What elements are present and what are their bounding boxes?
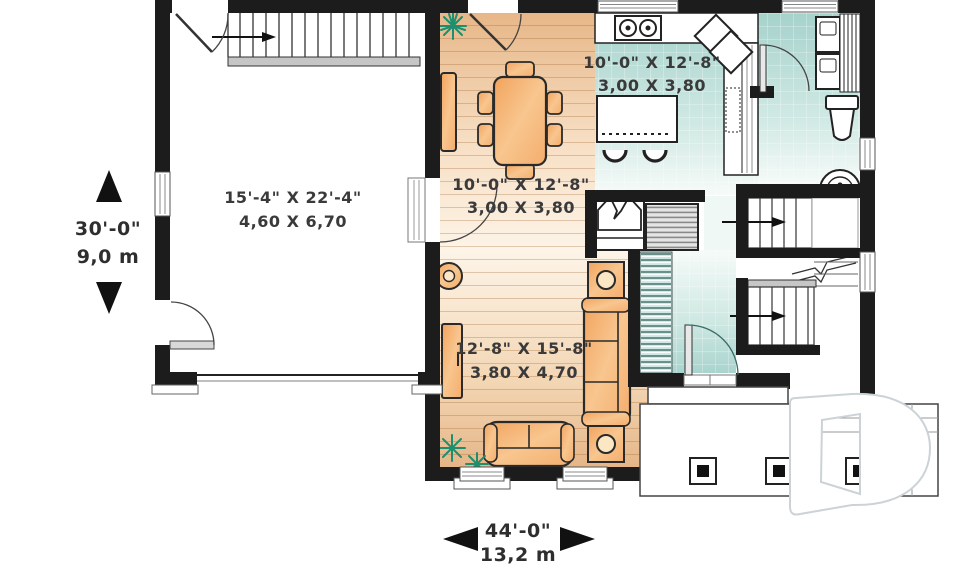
arrow-right-icon <box>560 527 595 551</box>
floor-plan-page: 15'-4" X 22'-4" 4,60 X 6,70 10'-0" X 12'… <box>0 0 960 569</box>
entry-closet-shelves <box>640 252 672 373</box>
linen-shelves <box>840 14 860 92</box>
fireplace <box>596 196 698 250</box>
stool <box>644 150 666 161</box>
living-window-west <box>454 467 510 489</box>
lamp <box>597 271 615 289</box>
end-table-south <box>588 426 624 462</box>
hearth <box>646 204 698 250</box>
stair-landing <box>812 198 858 248</box>
garage-size-metric: 4,60 X 6,70 <box>239 212 347 231</box>
dining-table <box>494 77 546 165</box>
loveseat <box>484 422 574 466</box>
width-metric: 13,2 m <box>480 544 556 566</box>
floor-plan-drawing: 15'-4" X 22'-4" 4,60 X 6,70 10'-0" X 12'… <box>0 0 960 569</box>
plant-icon <box>440 13 466 39</box>
right-wall-window-lower <box>860 252 875 292</box>
arrow-up-icon <box>96 170 122 202</box>
porch-column <box>690 458 716 484</box>
porch-column <box>766 458 792 484</box>
kitchen-sink <box>615 16 661 40</box>
end-table-north <box>588 262 624 298</box>
buffet <box>441 73 456 151</box>
arrow-down-icon <box>96 282 122 314</box>
width-imperial: 44'-0" <box>485 520 551 542</box>
kitchen-size-imperial: 10'-0" X 12'-8" <box>583 53 721 72</box>
depth-metric: 9,0 m <box>77 246 140 268</box>
right-wall-window-upper <box>860 138 875 170</box>
garage-size-imperial: 15'-4" X 22'-4" <box>224 188 362 207</box>
washer-dryer <box>816 17 840 89</box>
lamp <box>597 435 615 453</box>
living-size-metric: 3,80 X 4,70 <box>470 363 578 382</box>
garage-left-window <box>155 172 170 216</box>
laundry-window <box>782 1 838 12</box>
sofa <box>582 298 630 426</box>
depth-dimension-marker: 30'-0" 9,0 m <box>75 170 141 314</box>
dining-size-imperial: 10'-0" X 12'-8" <box>452 175 590 194</box>
living-window-east <box>557 467 613 489</box>
kitchen-size-metric: 3,00 X 3,80 <box>598 76 706 95</box>
kitchen-window <box>598 1 678 12</box>
living-size-imperial: 12'-8" X 15'-8" <box>455 339 593 358</box>
stair-break-line <box>792 263 856 282</box>
depth-imperial: 30'-0" <box>75 218 141 240</box>
entry-stoop <box>648 387 788 404</box>
dining-size-metric: 3,00 X 3,80 <box>467 198 575 217</box>
stool <box>604 150 626 161</box>
stair-railing <box>228 57 420 66</box>
width-dimension-marker: 44'-0" 13,2 m <box>443 520 595 566</box>
arrow-left-icon <box>443 527 478 551</box>
